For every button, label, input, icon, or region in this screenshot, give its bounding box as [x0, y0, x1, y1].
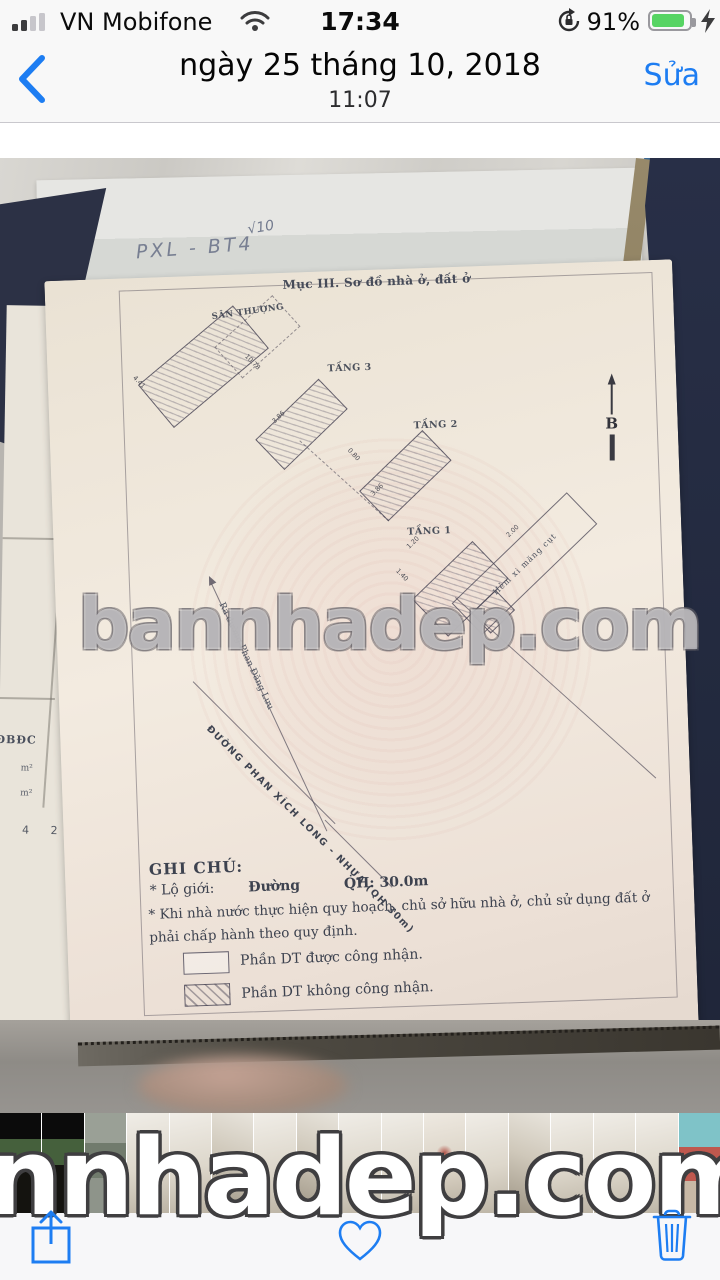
thumbnail[interactable]: [636, 1113, 677, 1213]
planning-width-value: QH: 30.0m: [344, 873, 429, 892]
legend-box-recognized: [183, 951, 230, 975]
floor3-label: TẦNG 3: [327, 362, 372, 375]
thumbnail[interactable]: [424, 1113, 465, 1213]
thumbnail[interactable]: [509, 1113, 550, 1213]
unit-label: m²: [20, 788, 32, 798]
photo-time-subtitle: 11:07: [0, 88, 720, 113]
top-chrome: VN Mobifone 17:34 91% ngày 25 tháng 10, …: [0, 0, 720, 123]
delete-trash-button[interactable]: [650, 1208, 694, 1262]
north-arrow: B: [600, 373, 624, 477]
legend-box-unrecognized: [184, 983, 231, 1007]
thumbnail[interactable]: [0, 1113, 41, 1213]
watermark-center: bannhadep.com: [78, 582, 678, 666]
table-line: [0, 697, 55, 699]
thumbnail[interactable]: [382, 1113, 423, 1213]
thumbnail[interactable]: [679, 1113, 720, 1213]
thumbnail[interactable]: [466, 1113, 507, 1213]
road-boundary-label: * Lộ giới:: [149, 881, 214, 899]
thumbnail[interactable]: [127, 1113, 168, 1213]
photo-date-title: ngày 25 tháng 10, 2018: [0, 48, 720, 83]
back-button[interactable]: [14, 54, 48, 104]
thumbnail[interactable]: [254, 1113, 295, 1213]
thumbnail[interactable]: [297, 1113, 338, 1213]
edit-button[interactable]: Sửa: [644, 58, 700, 93]
battery-percent-label: 91%: [587, 8, 640, 36]
rotation-lock-icon: [556, 8, 582, 34]
photo-viewer[interactable]: √10 PXL - BT4 BĐBĐC m² m² 0 4 2 7 Mục II…: [0, 158, 720, 1113]
left-fragment-label: BĐBĐC: [0, 733, 37, 747]
notes-heading: GHI CHÚ:: [149, 857, 244, 879]
thumbnail[interactable]: [42, 1113, 83, 1213]
table-line: [3, 537, 61, 540]
thumbnail[interactable]: [594, 1113, 635, 1213]
photos-app-screen: { "status_bar": { "carrier": "VN Mobifon…: [0, 0, 720, 1280]
road-word: Đường: [248, 878, 300, 896]
thumbnail[interactable]: [212, 1113, 253, 1213]
thumbnail[interactable]: [85, 1113, 126, 1213]
thumbnail[interactable]: [170, 1113, 211, 1213]
floor2-label: TẦNG 2: [413, 419, 458, 432]
document-page: Mục III. Sơ đồ nhà ở, đất ở SÂN THƯỢNG T…: [44, 259, 699, 1074]
handwriting-note: PXL - BT4: [135, 233, 254, 264]
favorite-heart-button[interactable]: [337, 1220, 383, 1262]
finger-blur: [138, 1056, 348, 1113]
battery-icon: [648, 10, 692, 31]
photo-thumbnail-strip[interactable]: [0, 1113, 720, 1213]
charging-bolt-icon: [700, 9, 716, 33]
unit-label: m²: [21, 763, 33, 773]
north-label: B: [600, 414, 624, 432]
thumbnail[interactable]: [551, 1113, 592, 1213]
thumbnail[interactable]: [339, 1113, 380, 1213]
share-button[interactable]: [27, 1208, 75, 1266]
